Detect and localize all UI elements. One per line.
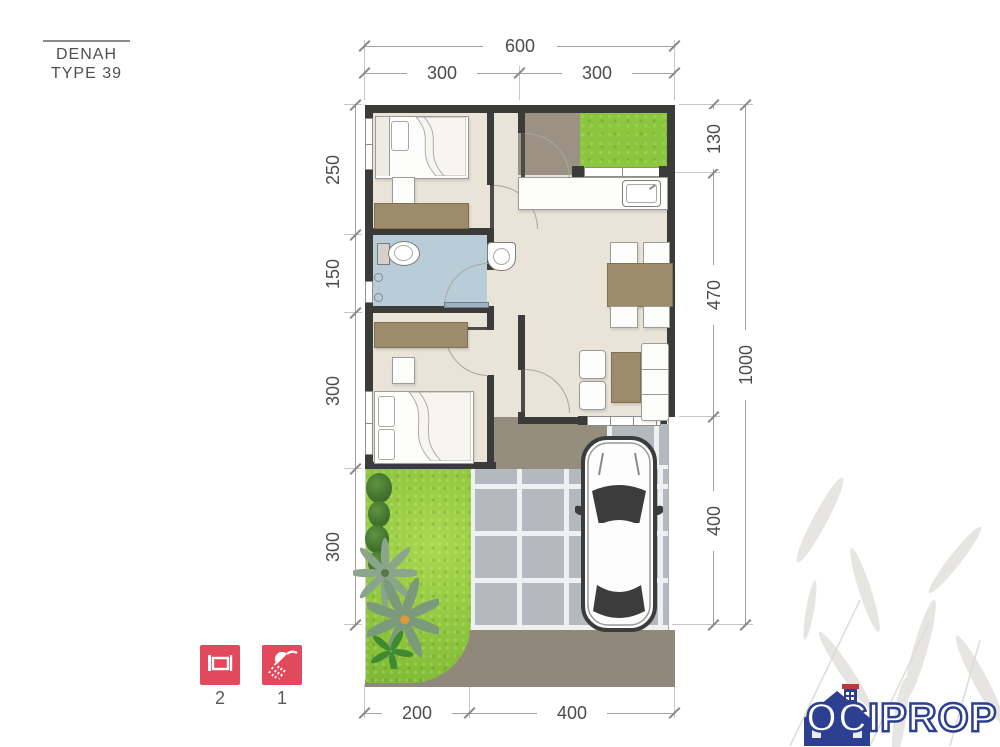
basin-bowl [493, 248, 510, 265]
kitchen-sink [622, 180, 661, 207]
wall-hall-b [518, 315, 525, 370]
dim-label-300: 300 [407, 64, 477, 82]
wash-basin [487, 242, 516, 271]
wall-bed1-bath [365, 228, 494, 235]
garden-shrub [368, 501, 390, 527]
wall-hall-a [487, 313, 494, 330]
coffee-table [611, 352, 641, 403]
door-leaf-bathroom [444, 302, 489, 308]
dining-chair [643, 306, 670, 328]
dim-label-300: 300 [324, 517, 342, 577]
bed-icon [200, 645, 240, 685]
dining-chair [610, 306, 638, 328]
dining-chair [610, 242, 638, 264]
dim-label-1000: 1000 [737, 330, 755, 400]
wall-hall-b [518, 113, 525, 133]
title-rule [43, 40, 130, 42]
window-kitchen [584, 167, 661, 177]
dim-label-300: 300 [324, 361, 342, 421]
bathroom-legend-tile [262, 645, 302, 685]
bathroom-count: 1 [262, 688, 302, 709]
dining-table [607, 263, 673, 307]
dim-label-300: 300 [562, 64, 632, 82]
bedroom-count: 2 [200, 688, 240, 709]
page-title-line2: TYPE 39 [43, 65, 130, 83]
garden-shrub [366, 473, 392, 503]
wall-hall-a [487, 375, 494, 462]
dim-label-400: 400 [705, 491, 723, 551]
living-chair [579, 381, 606, 410]
dim-label-250: 250 [324, 140, 342, 200]
wall-top [365, 105, 675, 113]
window-bedroom2 [365, 391, 373, 455]
bed-blanket-fold [395, 392, 471, 461]
dim-label-600: 600 [483, 37, 557, 55]
floor-plan [365, 105, 675, 687]
dim-label-150: 150 [324, 244, 342, 304]
bed-blanket-fold [406, 117, 466, 176]
wardrobe-1 [374, 203, 469, 229]
dim-label-470: 470 [705, 265, 723, 325]
bedroom-legend-tile [200, 645, 240, 685]
carport-edge-line [668, 417, 669, 630]
dim-label-400: 400 [537, 704, 607, 722]
title-block: DENAH TYPE 39 [43, 40, 130, 83]
bed-headboard [376, 117, 390, 176]
window-bathroom [365, 281, 373, 303]
bed-pillow [378, 396, 395, 427]
window-pillar [578, 416, 587, 425]
legend: 2 1 [200, 645, 310, 705]
brand-logo: OCIPROP [796, 680, 1000, 747]
wall-hall-a [487, 113, 494, 185]
brand-logo-text: OCIPROP [806, 698, 997, 738]
extension-line [679, 104, 753, 105]
nightstand-2 [392, 357, 415, 384]
bed-pillow [378, 429, 395, 460]
shower-valve-icon [374, 273, 383, 282]
wardrobe-2 [374, 322, 468, 348]
dim-label-200: 200 [382, 704, 452, 722]
dim-label-130: 130 [705, 109, 723, 169]
bed-2 [374, 391, 474, 464]
service-yard-grass [580, 113, 667, 168]
dining-chair [643, 242, 670, 264]
living-chair [579, 350, 606, 379]
car [575, 433, 663, 635]
shower-icon [262, 645, 302, 685]
shower-valve-icon [374, 293, 383, 302]
bed-1 [375, 116, 469, 179]
fern-plant-icon [369, 629, 413, 669]
window-pillar [659, 166, 669, 177]
page-title-line1: DENAH [43, 46, 130, 64]
window-pillar [572, 166, 584, 177]
window-bedroom1 [365, 118, 373, 170]
toilet-bowl-inner [394, 245, 413, 261]
sofa [641, 343, 669, 421]
nightstand-1 [392, 177, 415, 204]
